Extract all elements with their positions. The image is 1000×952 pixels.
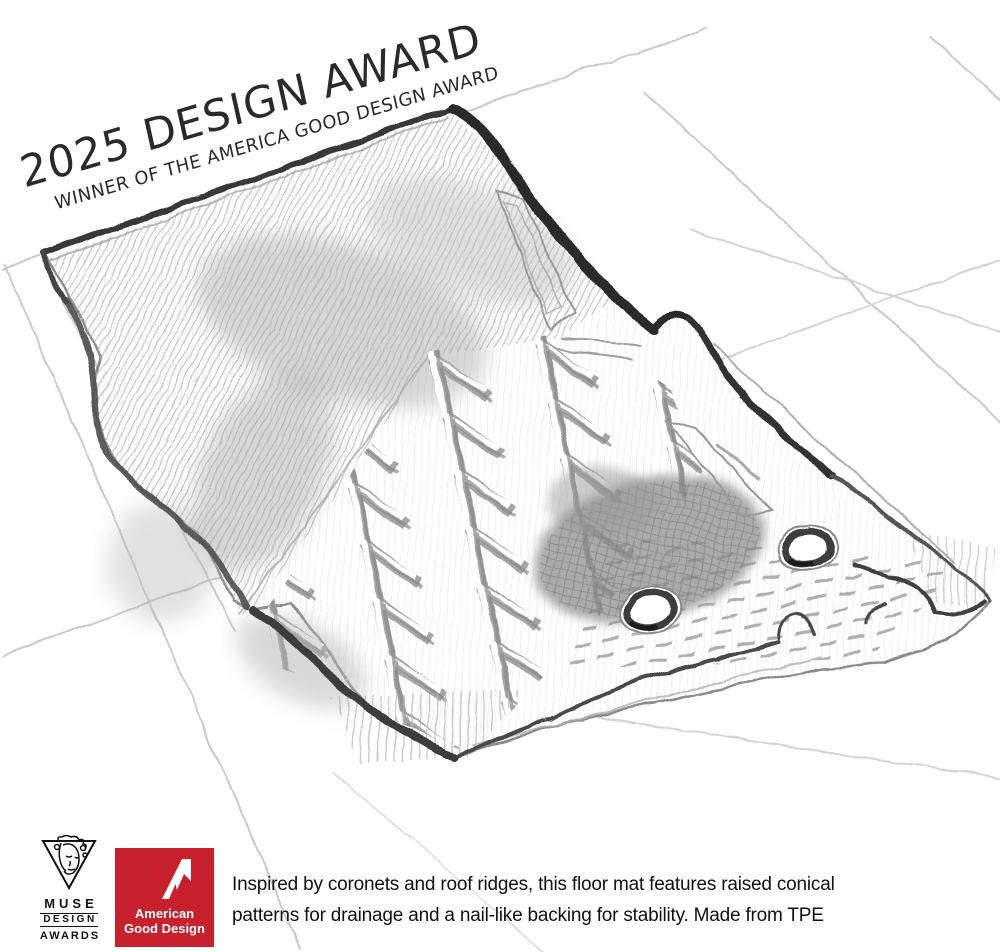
muse-design-awards-logo: MUSE DESIGN AWARDS [36,834,102,942]
muse-logo-design-word: DESIGN [40,913,98,927]
caption-line1: Inspired by coronets and roof ridges, th… [232,869,835,900]
caption-line2: patterns for drainage and a nail-like ba… [232,900,835,931]
american-good-design-logo: American Good Design [115,848,214,947]
product-caption: Inspired by coronets and roof ridges, th… [232,869,835,931]
stylized-a-icon [146,855,198,905]
agd-logo-line1: American [115,906,214,921]
muse-logo-awards-word: AWARDS [38,930,102,942]
floor-mat-drawing [42,107,1000,827]
agd-logo-line2: Good Design [115,921,214,936]
muse-face-in-triangle-icon [37,834,101,894]
product-image: 2025 DESIGN AWARD WINNER OF THE AMERICA … [0,0,1000,952]
muse-logo-word: MUSE [40,896,102,911]
